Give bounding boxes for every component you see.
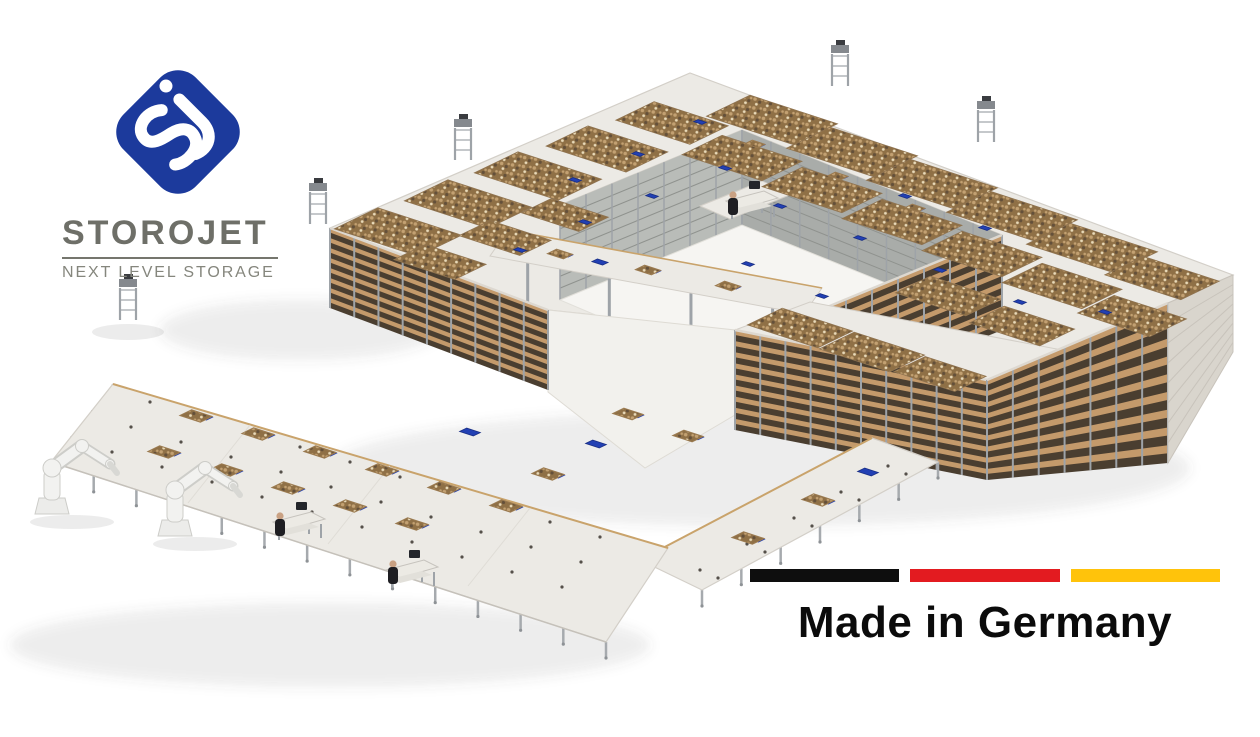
german-flag-bars [750,569,1220,582]
logo-subtitle: NEXT LEVEL STORAGE [62,264,294,282]
made-in-germany-badge: Made in Germany [750,569,1220,648]
storojet-logo-mark [62,56,294,208]
flag-bar-gold [1071,569,1220,582]
logo-underline [62,257,278,259]
flag-bar-black [750,569,899,582]
storojet-poster: STOROJET NEXT LEVEL STORAGE Made in Germ… [0,0,1260,737]
made-in-germany-text: Made in Germany [750,598,1220,648]
flag-bar-red [910,569,1059,582]
storojet-logo: STOROJET NEXT LEVEL STORAGE [62,56,294,282]
logo-title: STOROJET [62,214,294,253]
